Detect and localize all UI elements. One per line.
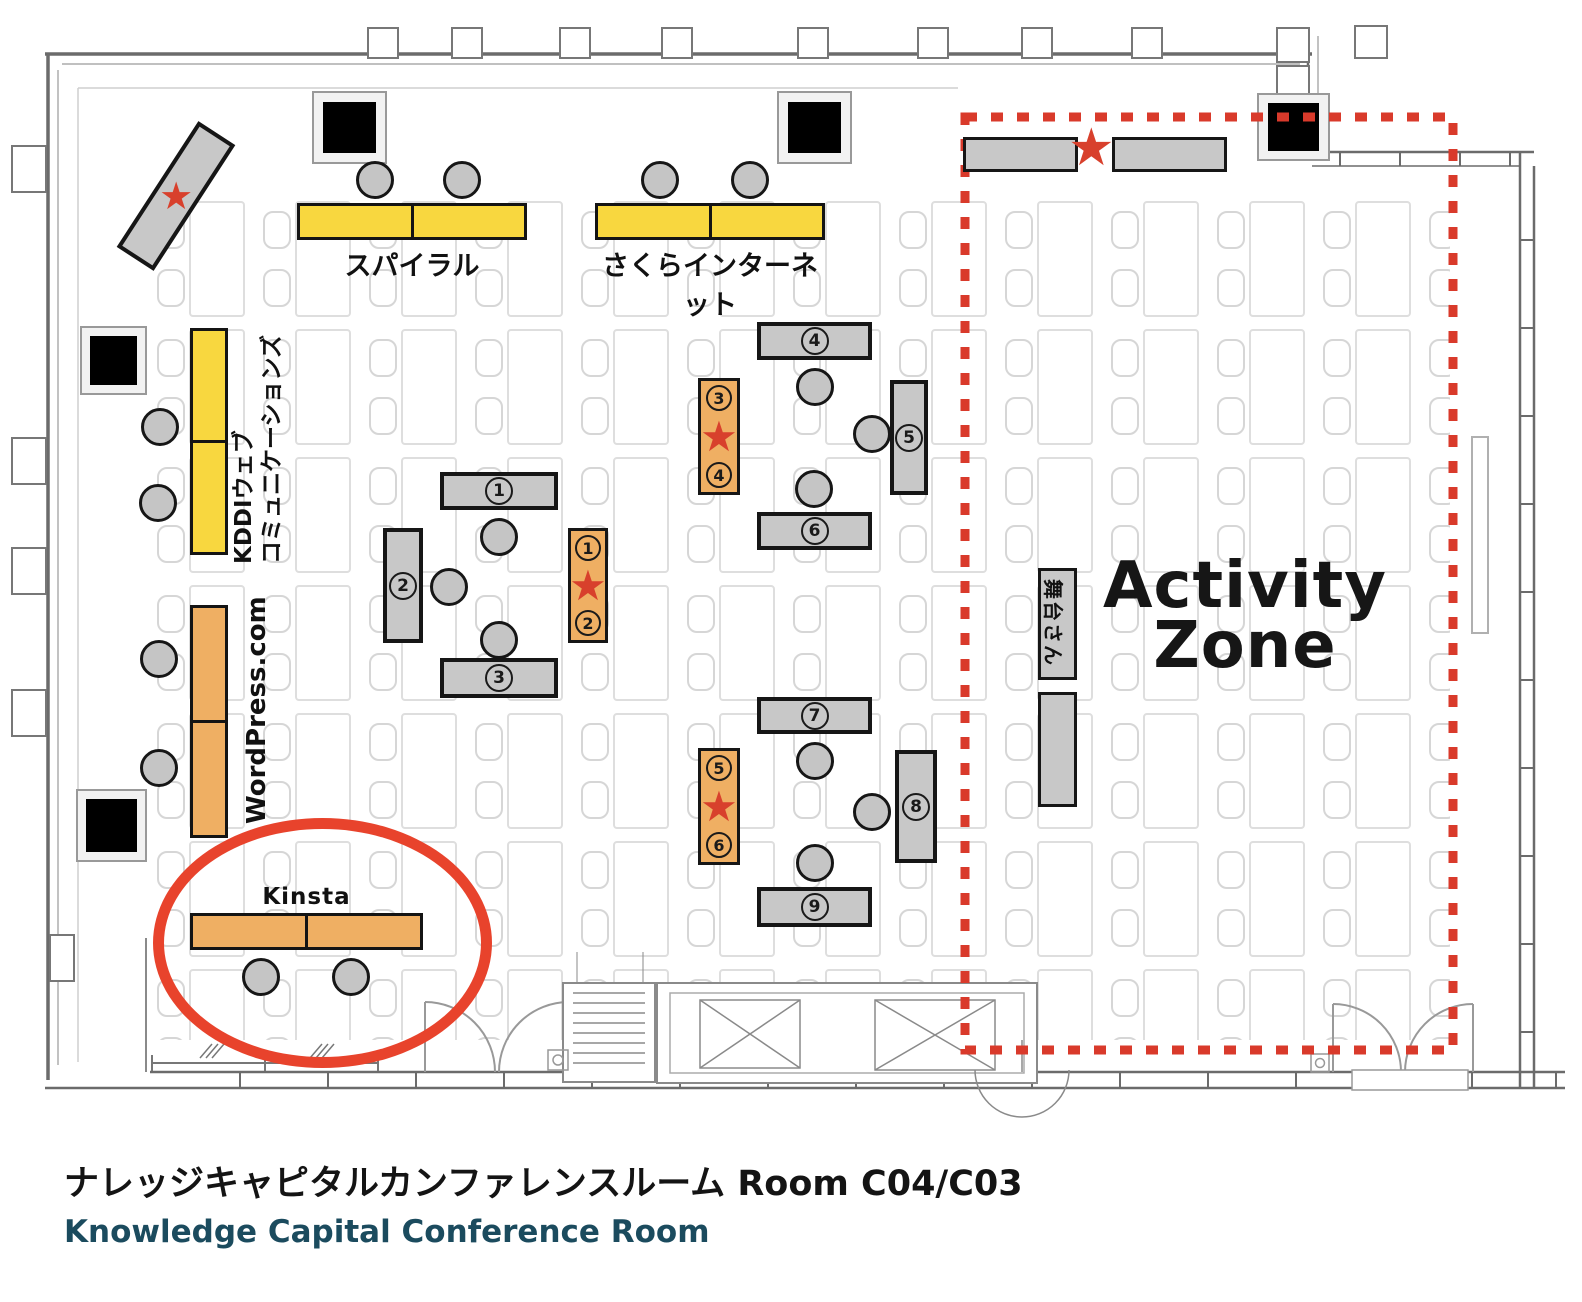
attendee-circle (731, 161, 769, 199)
attendee-circle (853, 415, 891, 453)
booth-kddi (190, 328, 228, 555)
table-number: 1 (575, 535, 601, 561)
footer: ナレッジキャピタルカンファレンスルーム Room C04/C03 Knowled… (64, 1155, 1023, 1250)
pillar (1268, 103, 1319, 151)
table-1: 1 (440, 472, 558, 510)
attendee-circle (795, 470, 833, 508)
speaker-table-1-2: 1 ★ 2 (568, 528, 608, 643)
table-number: 2 (389, 572, 417, 600)
booth-table (308, 916, 420, 947)
pillar (788, 102, 841, 153)
table-3: 3 (440, 658, 558, 698)
room-title-jp: ナレッジキャピタルカンファレンスルーム Room C04/C03 (64, 1155, 1023, 1206)
pillar (323, 102, 376, 153)
booth-table (193, 723, 225, 835)
booth-table (598, 206, 712, 237)
star-icon: ★ (700, 790, 738, 824)
room-title-en: Knowledge Capital Conference Room (64, 1214, 1023, 1250)
attendee-circle (480, 621, 518, 659)
attendee-circle (641, 161, 679, 199)
attendee-circle (480, 518, 518, 556)
wall-niche (1472, 437, 1488, 633)
booth-table (712, 206, 823, 237)
table-8: 8 (895, 750, 937, 863)
booth-wordpress (190, 605, 228, 838)
attendee-circle (140, 640, 178, 678)
table-number: 4 (706, 462, 732, 488)
table-6: 6 (757, 512, 872, 550)
star-icon: ★ (569, 569, 607, 603)
attendee-circle (139, 484, 177, 522)
activity-zone-table (1112, 137, 1227, 172)
star-icon: ★ (700, 420, 738, 454)
pillar (86, 799, 137, 852)
booth-kddi-label-line2: コミュニケーションズ (258, 328, 286, 564)
booth-kinsta (190, 913, 423, 950)
star-icon: ★ (159, 181, 193, 211)
pillar (90, 336, 137, 385)
activity-zone-table (963, 137, 1078, 172)
booth-sakura (595, 203, 825, 240)
attendee-circle (796, 844, 834, 882)
attendee-circle (796, 742, 834, 780)
booth-kddi-label-line1: KDDIウェブ (230, 328, 258, 564)
booth-table (193, 608, 225, 723)
table-number: 9 (801, 893, 829, 921)
table-number: 6 (801, 517, 829, 545)
booth-kinsta-label: Kinsta (190, 884, 423, 910)
table-number: 3 (706, 385, 732, 411)
attendee-circle (853, 793, 891, 831)
speaker-table-5-6: 5 ★ 6 (698, 748, 740, 865)
booth-wordpress-label: WordPress.com (242, 604, 276, 824)
table-number: 5 (706, 755, 732, 781)
booth-table (414, 206, 525, 237)
booth-table (193, 443, 225, 552)
booth-spiral (297, 203, 527, 240)
table-7: 7 (757, 697, 872, 734)
booth-kddi-label: KDDIウェブ コミュニケーションズ (230, 328, 286, 564)
attendee-circle (443, 161, 481, 199)
elevator (657, 983, 1069, 1117)
activity-zone-label: Activity Zone (1040, 556, 1450, 676)
attendee-circle (356, 161, 394, 199)
booth-table (300, 206, 414, 237)
attendee-circle (140, 749, 178, 787)
floor-plan: ★ スパイラル さくらインターネット ★ KDDIウェブ コミュニケーションズ … (0, 0, 1582, 1120)
table-number: 1 (485, 477, 513, 505)
table-number: 2 (575, 610, 601, 636)
activity-zone-label-line2: Zone (1040, 616, 1450, 676)
star-icon: ★ (1068, 128, 1115, 170)
attendee-circle (242, 958, 280, 996)
table-9: 9 (757, 887, 872, 927)
booth-table (193, 916, 308, 947)
table-5: 5 (890, 380, 928, 495)
activity-zone-label-line1: Activity (1040, 556, 1450, 616)
attendee-circle (796, 368, 834, 406)
attendee-circle (332, 958, 370, 996)
attendee-circle (141, 408, 179, 446)
booth-spiral-label: スパイラル (297, 244, 527, 283)
booth-table (193, 331, 225, 443)
table-number: 6 (706, 832, 732, 858)
table-2: 2 (383, 528, 423, 643)
stage-desk-table (1038, 692, 1077, 807)
table-number: 7 (801, 702, 829, 730)
booth-sakura-label: さくらインターネット (595, 244, 825, 322)
table-number: 4 (801, 327, 829, 355)
attendee-circle (430, 568, 468, 606)
speaker-table-3-4: 3 ★ 4 (698, 378, 740, 495)
table-number: 5 (895, 424, 923, 452)
table-number: 3 (485, 664, 513, 692)
table-number: 8 (902, 793, 930, 821)
table-4: 4 (757, 322, 872, 360)
